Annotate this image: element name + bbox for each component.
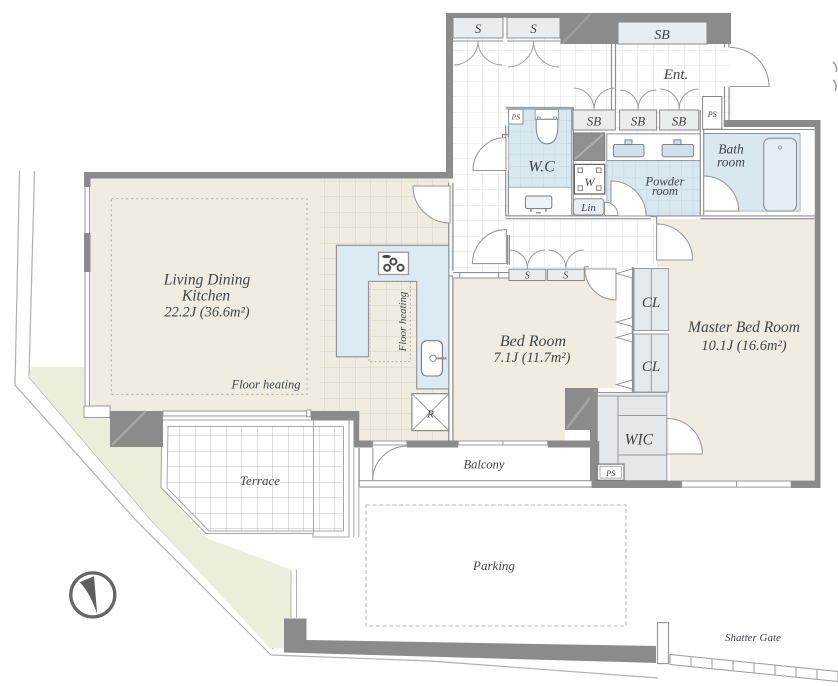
- svg-text:CL: CL: [642, 359, 660, 375]
- svg-text:Terrace: Terrace: [240, 473, 280, 488]
- svg-text:Kitchen: Kitchen: [181, 288, 230, 305]
- svg-text:7.1J (11.7m²): 7.1J (11.7m²): [494, 350, 571, 366]
- svg-text:Shatter Gate: Shatter Gate: [725, 632, 781, 644]
- svg-text:Floor heating: Floor heating: [230, 378, 300, 392]
- svg-text:PS: PS: [511, 113, 521, 122]
- svg-text:SB: SB: [672, 114, 687, 129]
- svg-text:Balcony: Balcony: [464, 458, 505, 472]
- svg-text:PS: PS: [707, 110, 717, 119]
- svg-text:S: S: [525, 271, 530, 282]
- svg-text:room: room: [652, 184, 678, 198]
- svg-text:Floor heating: Floor heating: [397, 291, 409, 352]
- svg-text:WIC: WIC: [625, 432, 654, 449]
- svg-text:Living Dining: Living Dining: [163, 272, 251, 289]
- svg-text:SB: SB: [587, 114, 602, 129]
- svg-text:S: S: [563, 271, 568, 282]
- svg-text:room: room: [717, 155, 745, 170]
- svg-text:CL: CL: [642, 295, 660, 311]
- svg-text:S: S: [530, 21, 537, 36]
- svg-text:W.C: W.C: [528, 159, 555, 176]
- svg-text:10.1J (16.6m²): 10.1J (16.6m²): [701, 338, 786, 354]
- svg-text:R: R: [426, 409, 434, 421]
- svg-text:Ent.: Ent.: [663, 67, 689, 83]
- svg-text:Parking: Parking: [472, 558, 515, 573]
- svg-text:W: W: [585, 175, 596, 189]
- svg-text:S: S: [475, 21, 482, 36]
- svg-text:22.2J (36.6m²): 22.2J (36.6m²): [164, 305, 249, 321]
- svg-text:PS: PS: [605, 469, 615, 478]
- svg-text:SB: SB: [631, 114, 646, 129]
- svg-text:SB: SB: [654, 28, 670, 43]
- svg-text:Lin: Lin: [580, 202, 596, 214]
- svg-text:Bed Room: Bed Room: [500, 333, 566, 350]
- svg-text:Master Bed Room: Master Bed Room: [687, 319, 800, 336]
